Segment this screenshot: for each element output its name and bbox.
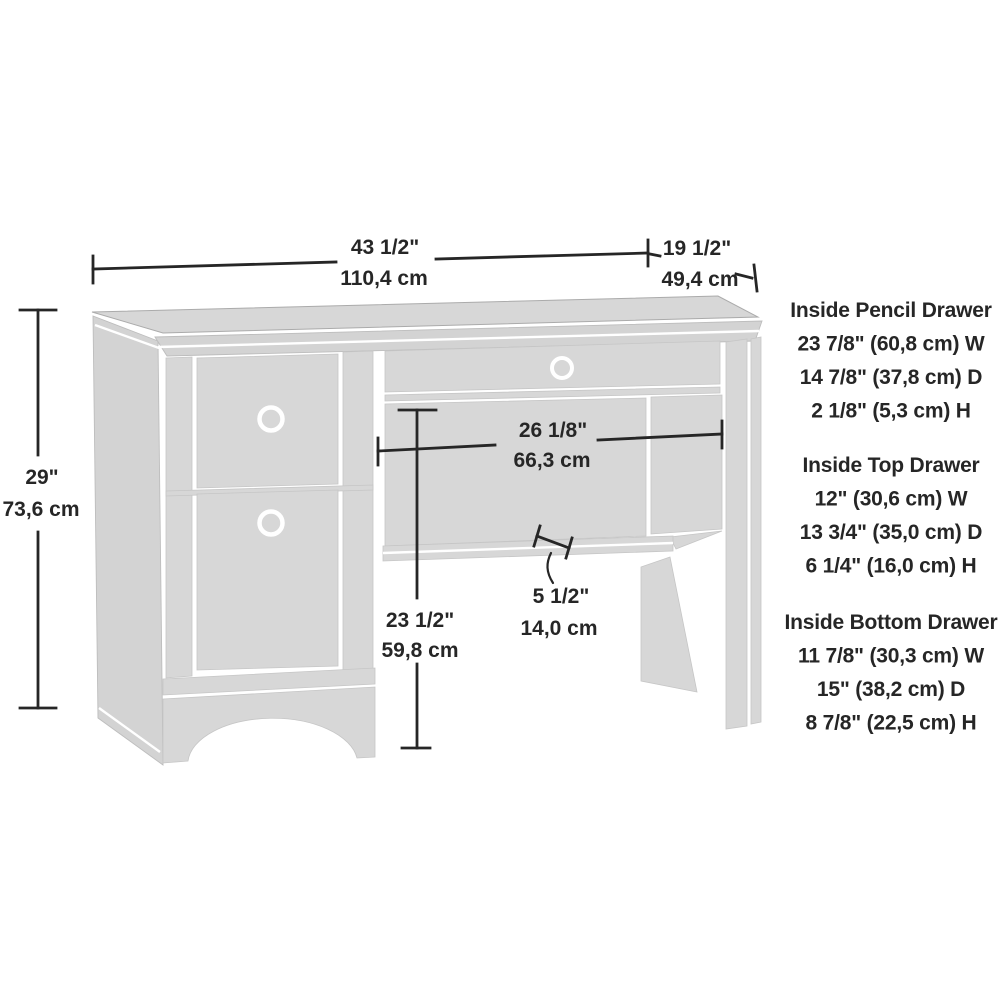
bottom-drawer-specs-title: Inside Bottom Drawer (784, 611, 997, 634)
pencil-drawer-specs-title: Inside Pencil Drawer (790, 299, 991, 322)
width-inches-label: 43 1/2" (351, 236, 419, 259)
top-drawer-height-spec: 6 1/4" (16,0 cm) H (806, 555, 977, 578)
top-drawer-specs-title: Inside Top Drawer (802, 454, 979, 477)
shelf-clearance-inches-label: 5 1/2" (533, 585, 590, 608)
pedestal-left-stile (166, 357, 192, 678)
knee-width-inches-label: 26 1/8" (519, 419, 587, 442)
shelf-clearance-leader-line (547, 553, 553, 583)
height-metric-label: 73,6 cm (2, 498, 79, 521)
right-cubby-panel (651, 395, 722, 534)
top-drawer-width-spec: 12" (30,6 cm) W (815, 488, 968, 511)
top-drawer-specs: Inside Top Drawer 12" (30,6 cm) W 13 3/4… (800, 454, 982, 578)
depth-metric-label: 49,4 cm (661, 268, 738, 291)
bottom-drawer-width-spec: 11 7/8" (30,3 cm) W (798, 645, 984, 668)
height-inches-label: 29" (25, 466, 58, 489)
shelf-right-wing (670, 531, 722, 549)
pedestal-right-stile (343, 351, 373, 672)
knee-height-metric-label: 59,8 cm (381, 639, 458, 662)
bottom-file-drawer-front (197, 490, 338, 670)
knee-width-metric-label: 66,3 cm (513, 449, 590, 472)
pencil-drawer-height-spec: 2 1/8" (5,3 cm) H (811, 400, 970, 423)
shelf-clearance-metric-label: 14,0 cm (520, 617, 597, 640)
top-drawer-depth-spec: 13 3/4" (35,0 cm) D (800, 521, 982, 544)
pencil-drawer-specs: Inside Pencil Drawer 23 7/8" (60,8 cm) W… (790, 299, 991, 423)
depth-inches-label: 19 1/2" (663, 237, 731, 260)
desk-drawing (92, 296, 762, 765)
knee-height-inches-label: 23 1/2" (386, 609, 454, 632)
right-side-panel-edge (751, 337, 761, 724)
top-file-drawer-front (197, 354, 338, 488)
pencil-drawer-width-spec: 23 7/8" (60,8 cm) W (797, 333, 984, 356)
diagram-canvas: 43 1/2" 110,4 cm 19 1/2" 49,4 cm 29" 73,… (0, 0, 1000, 1000)
left-side-panel (93, 316, 163, 765)
pencil-drawer-depth-spec: 14 7/8" (37,8 cm) D (800, 366, 982, 389)
pedestal-arched-base (163, 687, 375, 763)
height-dimension: 29" 73,6 cm (2, 310, 79, 708)
width-metric-label: 110,4 cm (340, 267, 428, 290)
right-side-panel-front (726, 339, 747, 729)
bottom-drawer-height-spec: 8 7/8" (22,5 cm) H (806, 712, 977, 735)
below-shelf-side-panel (641, 557, 697, 692)
right-side-panel (726, 337, 761, 729)
bottom-drawer-specs: Inside Bottom Drawer 11 7/8" (30,3 cm) W… (784, 611, 997, 735)
drawer-spec-blocks: Inside Pencil Drawer 23 7/8" (60,8 cm) W… (784, 299, 997, 735)
knee-space-back-panel (385, 398, 646, 546)
width-dimension: 43 1/2" 110,4 cm (93, 236, 648, 290)
depth-dimension: 19 1/2" 49,4 cm (650, 237, 757, 291)
bottom-drawer-depth-spec: 15" (38,2 cm) D (817, 678, 965, 701)
left-pedestal (163, 351, 375, 763)
desk-dimension-diagram: 43 1/2" 110,4 cm 19 1/2" 49,4 cm 29" 73,… (0, 0, 1000, 1000)
pencil-drawer (385, 341, 720, 401)
